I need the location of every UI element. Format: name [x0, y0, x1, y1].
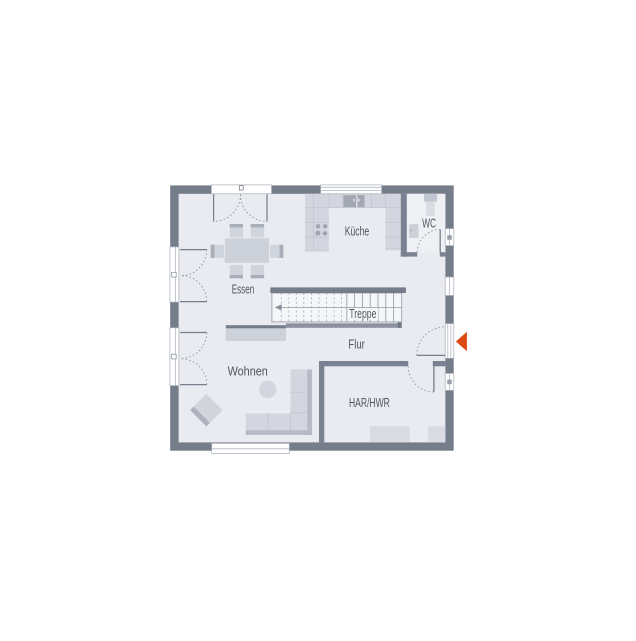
svg-text:Wohnen: Wohnen	[228, 364, 268, 378]
svg-text:Küche: Küche	[345, 224, 370, 238]
svg-text:Flur: Flur	[348, 337, 364, 351]
svg-text:Treppe: Treppe	[349, 307, 376, 321]
svg-text:HAR/HWR: HAR/HWR	[349, 396, 390, 410]
svg-text:WC: WC	[422, 216, 436, 230]
svg-text:Essen: Essen	[232, 282, 255, 296]
